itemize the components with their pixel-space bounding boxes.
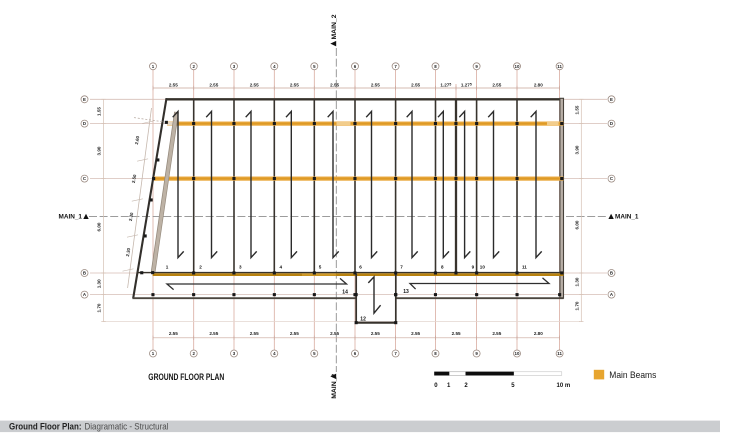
svg-text:2.55: 2.55 bbox=[492, 83, 501, 88]
svg-text:2: 2 bbox=[199, 264, 202, 269]
svg-text:D: D bbox=[610, 121, 613, 126]
svg-text:2.55: 2.55 bbox=[330, 83, 339, 88]
svg-text:12: 12 bbox=[360, 316, 366, 322]
svg-text:2.55: 2.55 bbox=[452, 331, 461, 336]
svg-text:10 m: 10 m bbox=[557, 383, 571, 389]
svg-text:3.90: 3.90 bbox=[96, 146, 101, 155]
svg-text:2.55: 2.55 bbox=[290, 331, 299, 336]
svg-text:2.55: 2.55 bbox=[411, 331, 420, 336]
svg-text:9: 9 bbox=[472, 264, 475, 269]
svg-text:2.55: 2.55 bbox=[492, 331, 501, 336]
svg-text:Diagramatic - Structural: Diagramatic - Structural bbox=[85, 421, 169, 432]
svg-text:1: 1 bbox=[166, 264, 169, 269]
svg-text:4: 4 bbox=[280, 264, 283, 269]
svg-text:11: 11 bbox=[522, 264, 527, 269]
svg-text:MAIN_1: MAIN_1 bbox=[615, 214, 639, 221]
svg-text:E: E bbox=[83, 97, 86, 102]
svg-text:B: B bbox=[83, 271, 86, 276]
svg-text:D: D bbox=[83, 121, 86, 126]
svg-text:2.55: 2.55 bbox=[169, 331, 178, 336]
svg-text:2.55: 2.55 bbox=[209, 83, 218, 88]
svg-text:1.30: 1.30 bbox=[96, 279, 101, 288]
svg-text:6: 6 bbox=[359, 264, 362, 269]
svg-text:1.30: 1.30 bbox=[575, 277, 580, 286]
svg-text:8: 8 bbox=[441, 264, 444, 269]
svg-text:2.80: 2.80 bbox=[534, 83, 543, 88]
svg-text:E: E bbox=[610, 97, 613, 102]
svg-text:2.55: 2.55 bbox=[209, 331, 218, 336]
svg-text:MAIN_2: MAIN_2 bbox=[331, 14, 338, 39]
svg-text:2.55: 2.55 bbox=[290, 83, 299, 88]
svg-text:10: 10 bbox=[480, 264, 486, 269]
svg-text:2.55: 2.55 bbox=[169, 83, 178, 88]
svg-text:1.70: 1.70 bbox=[575, 301, 580, 310]
svg-text:5: 5 bbox=[319, 264, 322, 269]
svg-text:Ground Floor Plan:: Ground Floor Plan: bbox=[9, 421, 82, 432]
svg-text:B: B bbox=[610, 271, 613, 276]
svg-text:MAIN_1: MAIN_1 bbox=[59, 214, 83, 221]
svg-text:1.55: 1.55 bbox=[575, 105, 580, 114]
svg-text:2.80: 2.80 bbox=[534, 331, 543, 336]
svg-text:10: 10 bbox=[515, 64, 520, 69]
svg-text:2.55: 2.55 bbox=[371, 83, 380, 88]
svg-text:2.55: 2.55 bbox=[330, 331, 339, 336]
svg-text:6.00: 6.00 bbox=[96, 222, 101, 231]
svg-text:1.55: 1.55 bbox=[96, 107, 101, 116]
svg-text:Main Beams: Main Beams bbox=[609, 370, 656, 380]
svg-text:3: 3 bbox=[239, 264, 242, 269]
svg-text:14: 14 bbox=[342, 289, 348, 295]
svg-text:MAIN_2: MAIN_2 bbox=[331, 373, 338, 398]
svg-text:1.70: 1.70 bbox=[96, 303, 101, 312]
svg-text:11: 11 bbox=[557, 351, 562, 356]
svg-text:2.55: 2.55 bbox=[411, 83, 420, 88]
svg-text:GROUND FLOOR PLAN: GROUND FLOOR PLAN bbox=[148, 372, 224, 382]
svg-text:11: 11 bbox=[557, 64, 562, 69]
svg-text:13: 13 bbox=[403, 289, 409, 295]
svg-text:6.00: 6.00 bbox=[575, 220, 580, 229]
svg-text:2.55: 2.55 bbox=[250, 331, 259, 336]
svg-text:3.90: 3.90 bbox=[575, 145, 580, 154]
svg-text:2.55: 2.55 bbox=[371, 331, 380, 336]
svg-text:7: 7 bbox=[400, 264, 403, 269]
svg-text:10: 10 bbox=[515, 351, 520, 356]
svg-text:2.55: 2.55 bbox=[250, 83, 259, 88]
